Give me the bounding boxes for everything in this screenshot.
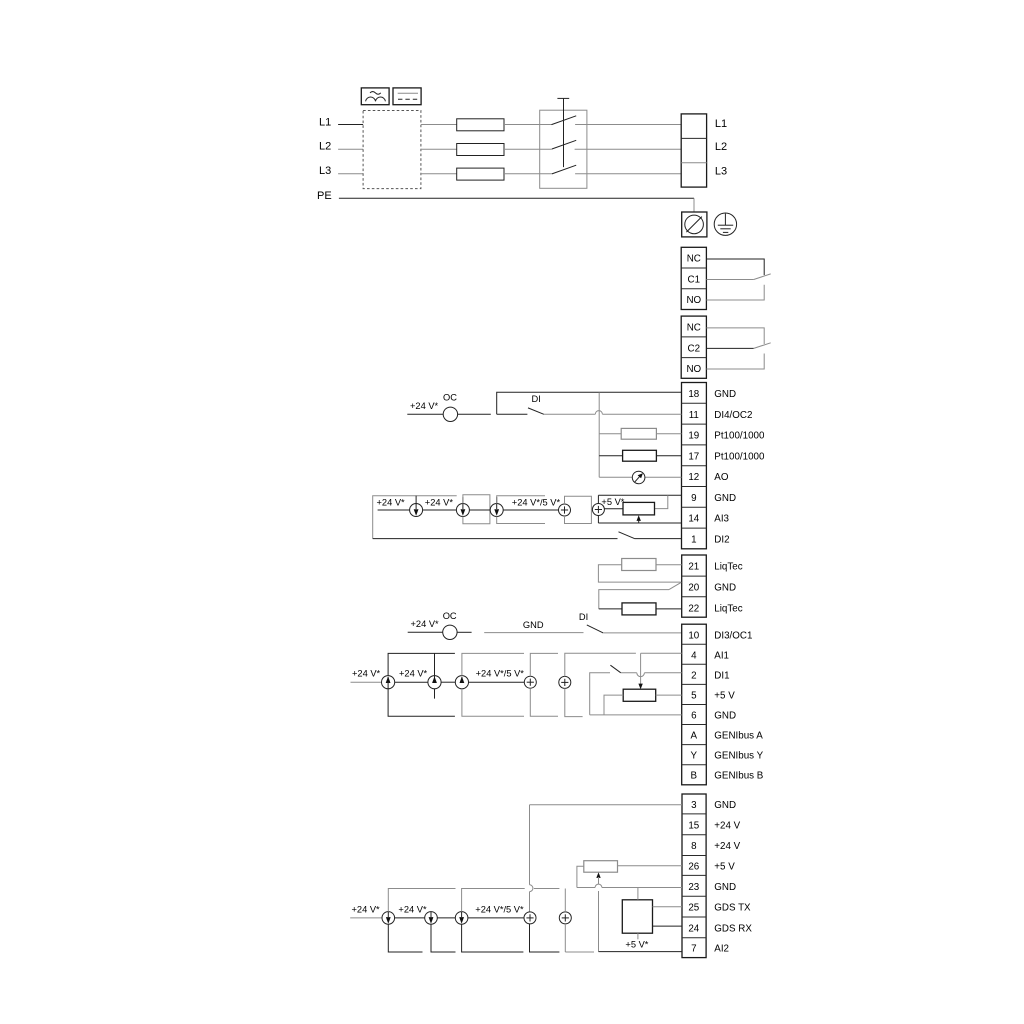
svg-text:NO: NO [686, 295, 701, 306]
svg-text:17: 17 [688, 451, 699, 462]
svg-text:DI1: DI1 [714, 670, 729, 681]
svg-text:L1: L1 [319, 116, 331, 128]
svg-text:8: 8 [691, 841, 697, 852]
svg-text:5: 5 [691, 691, 697, 702]
svg-text:1: 1 [691, 535, 696, 546]
svg-text:+24 V*/5 V*: +24 V*/5 V* [512, 498, 561, 508]
svg-text:+24 V*/5 V*: +24 V*/5 V* [476, 669, 525, 679]
svg-text:GND: GND [714, 389, 736, 400]
svg-text:+24 V*: +24 V* [425, 498, 454, 508]
svg-text:+5 V: +5 V [714, 862, 735, 873]
svg-text:24: 24 [688, 924, 699, 935]
svg-text:2: 2 [691, 670, 696, 681]
svg-text:L1: L1 [715, 118, 727, 130]
svg-text:GND: GND [714, 583, 736, 594]
svg-text:OC: OC [443, 393, 457, 403]
svg-text:20: 20 [688, 583, 699, 594]
svg-text:Pt100/1000: Pt100/1000 [714, 451, 765, 462]
svg-text:+24 V*: +24 V* [352, 905, 381, 915]
svg-text:+24 V: +24 V [714, 841, 740, 852]
svg-text:Y: Y [691, 751, 698, 762]
svg-text:14: 14 [688, 514, 699, 525]
svg-text:DI2: DI2 [714, 535, 729, 546]
svg-text:22: 22 [688, 604, 699, 615]
svg-text:+24 V*: +24 V* [352, 669, 381, 679]
svg-text:GENIbus B: GENIbus B [714, 771, 763, 782]
svg-text:9: 9 [691, 493, 696, 504]
svg-text:+24 V*: +24 V* [399, 669, 428, 679]
svg-text:GND: GND [714, 711, 736, 722]
svg-text:PE: PE [317, 190, 332, 202]
svg-text:6: 6 [691, 711, 697, 722]
svg-text:DI3/OC1: DI3/OC1 [714, 630, 752, 641]
svg-text:LiqTec: LiqTec [714, 604, 742, 615]
svg-text:19: 19 [688, 431, 699, 442]
svg-text:3: 3 [691, 800, 697, 811]
svg-text:25: 25 [688, 903, 699, 914]
svg-text:NC: NC [687, 254, 701, 265]
svg-text:L2: L2 [319, 141, 331, 153]
svg-text:B: B [691, 771, 698, 782]
svg-text:NC: NC [687, 323, 701, 334]
svg-text:Pt100/1000: Pt100/1000 [714, 431, 765, 442]
svg-text:+24 V: +24 V [714, 820, 740, 831]
svg-text:18: 18 [688, 389, 699, 400]
svg-text:AI3: AI3 [714, 514, 729, 525]
svg-text:+24 V*/5 V*: +24 V*/5 V* [475, 905, 524, 915]
svg-text:7: 7 [691, 944, 696, 955]
svg-text:15: 15 [688, 820, 699, 831]
svg-text:+5 V*: +5 V* [625, 939, 648, 949]
svg-text:GDS RX: GDS RX [714, 924, 752, 935]
svg-text:NO: NO [686, 364, 701, 375]
svg-text:AI2: AI2 [714, 944, 729, 955]
svg-text:L2: L2 [715, 141, 727, 153]
svg-text:+24 V*: +24 V* [398, 905, 427, 915]
svg-text:AO: AO [714, 472, 729, 483]
svg-text:GND: GND [523, 620, 544, 630]
svg-text:C2: C2 [688, 343, 701, 354]
svg-text:GDS TX: GDS TX [714, 903, 751, 914]
svg-text:4: 4 [691, 650, 697, 661]
svg-text:GND: GND [714, 882, 736, 893]
svg-text:AI1: AI1 [714, 650, 729, 661]
svg-text:+24 V*: +24 V* [377, 498, 406, 508]
svg-text:DI4/OC2: DI4/OC2 [714, 410, 752, 421]
svg-text:OC: OC [443, 611, 457, 621]
svg-text:GENIbus Y: GENIbus Y [714, 751, 763, 762]
svg-text:GENIbus A: GENIbus A [714, 731, 763, 742]
svg-text:L3: L3 [319, 165, 331, 177]
svg-text:26: 26 [688, 862, 699, 873]
svg-text:GND: GND [714, 800, 736, 811]
svg-text:L3: L3 [715, 166, 727, 178]
svg-text:DI: DI [532, 394, 541, 404]
svg-text:GND: GND [714, 493, 736, 504]
svg-text:DI: DI [579, 612, 588, 622]
svg-text:+24 V*: +24 V* [411, 619, 440, 629]
svg-text:11: 11 [689, 410, 699, 421]
svg-text:LiqTec: LiqTec [714, 562, 742, 573]
svg-text:C1: C1 [688, 274, 701, 285]
svg-text:12: 12 [688, 472, 699, 483]
svg-text:10: 10 [688, 630, 699, 641]
svg-text:A: A [691, 731, 698, 742]
svg-text:21: 21 [688, 562, 699, 573]
svg-text:+5 V: +5 V [714, 691, 735, 702]
svg-text:+5 V*: +5 V* [601, 497, 624, 507]
svg-text:23: 23 [688, 882, 699, 893]
svg-text:+24 V*: +24 V* [410, 401, 439, 411]
